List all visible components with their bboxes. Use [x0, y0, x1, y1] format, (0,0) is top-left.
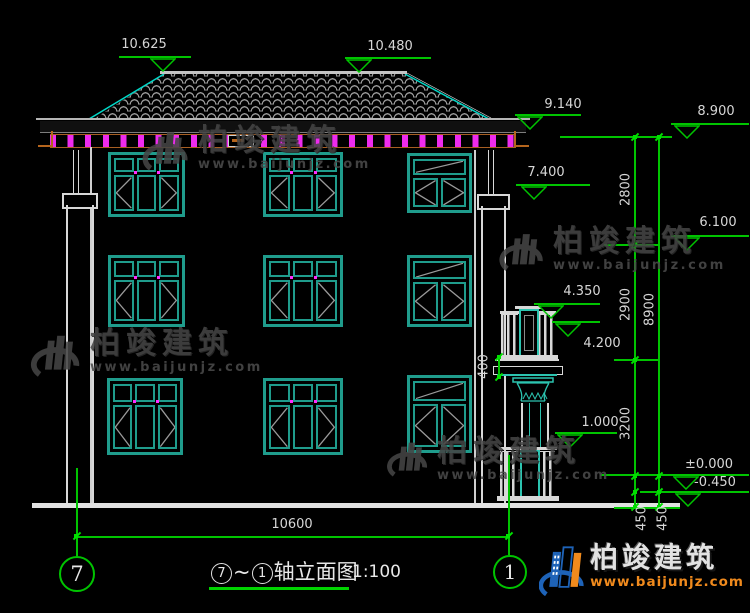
title-axis-to: 1	[252, 563, 273, 584]
axis-bubble-1: 1	[493, 555, 527, 589]
title-underline	[209, 587, 349, 590]
level-text: 7.400	[521, 166, 571, 180]
level-text: 1.000	[578, 416, 622, 430]
dim-text: 2900	[619, 285, 634, 325]
balcony-cornice-trim	[497, 374, 557, 376]
drawing-title: 7~1轴立面图	[210, 556, 358, 586]
watermark-logo-icon	[138, 125, 192, 181]
window-3pane	[107, 378, 183, 455]
watermark-logo-icon	[383, 436, 431, 486]
drawing-scale: 1:100	[352, 562, 401, 582]
eave-bracket-left-icon	[38, 131, 53, 147]
window-2pane	[407, 255, 472, 327]
watermark: 柏竣建筑 www.baijunjz.com	[26, 328, 263, 388]
eave-bracket-right-icon	[514, 131, 529, 147]
watermark-logo-icon	[495, 226, 547, 282]
axis-bubble-7: 7	[59, 556, 95, 592]
ground-line	[32, 503, 680, 508]
watermark-logo-icon	[26, 328, 84, 388]
title-name: 轴立面图	[274, 560, 358, 584]
dim-text: 400	[477, 350, 492, 384]
balcony-balusters-left	[501, 314, 518, 357]
brand-logo-icon	[539, 543, 585, 605]
level-text: ±0.000	[681, 458, 737, 472]
window-3pane	[263, 255, 343, 327]
dim-text: 8900	[643, 290, 658, 330]
dim-text: 2800	[619, 170, 634, 210]
dim-text: 450	[656, 506, 671, 532]
watermark: 柏竣建筑 www.baijunjz.com	[383, 436, 610, 486]
axis-line-7	[76, 468, 78, 556]
brand-logo: 柏竣建筑 www.baijunjz.com	[539, 543, 744, 605]
title-axis-from: 7	[211, 563, 232, 584]
downspout-right-drop	[488, 150, 494, 194]
elevation-drawing-canvas: 10.625 10.480 9.140 8.900 7.400 6.100 4.…	[0, 0, 750, 613]
level-text: 4.200	[578, 337, 626, 351]
dim-text: 450	[635, 506, 650, 532]
window-3pane	[108, 255, 185, 327]
eave-top-line	[36, 118, 530, 120]
level-text: 4.350	[558, 285, 606, 299]
dim-chain-inner	[634, 137, 636, 508]
watermark: 柏竣建筑 www.baijunjz.com	[495, 226, 726, 282]
window-2pane	[407, 153, 472, 213]
window-3pane	[263, 378, 343, 455]
level-text: 10.625	[118, 38, 170, 52]
level-text: 9.140	[540, 98, 586, 112]
level-text: 10.480	[363, 40, 417, 54]
dim-text: 3200	[619, 404, 634, 444]
dim-chain-outer	[658, 137, 660, 508]
watermark: 柏竣建筑 www.baijunjz.com	[138, 125, 371, 181]
width-dim-line	[77, 536, 510, 538]
porch-bottom-rail	[497, 496, 559, 501]
balcony-center-pier	[519, 309, 539, 359]
dim-text: 10600	[262, 518, 322, 532]
brand-name: 柏竣建筑	[590, 543, 744, 574]
brand-url: www.baijunjz.com	[590, 574, 744, 590]
roof-hip-lines	[80, 65, 510, 125]
downspout-left-drop	[73, 150, 79, 193]
level-text: 8.900	[692, 105, 740, 119]
column-capital	[512, 377, 554, 403]
level-text: -0.450	[690, 476, 740, 490]
